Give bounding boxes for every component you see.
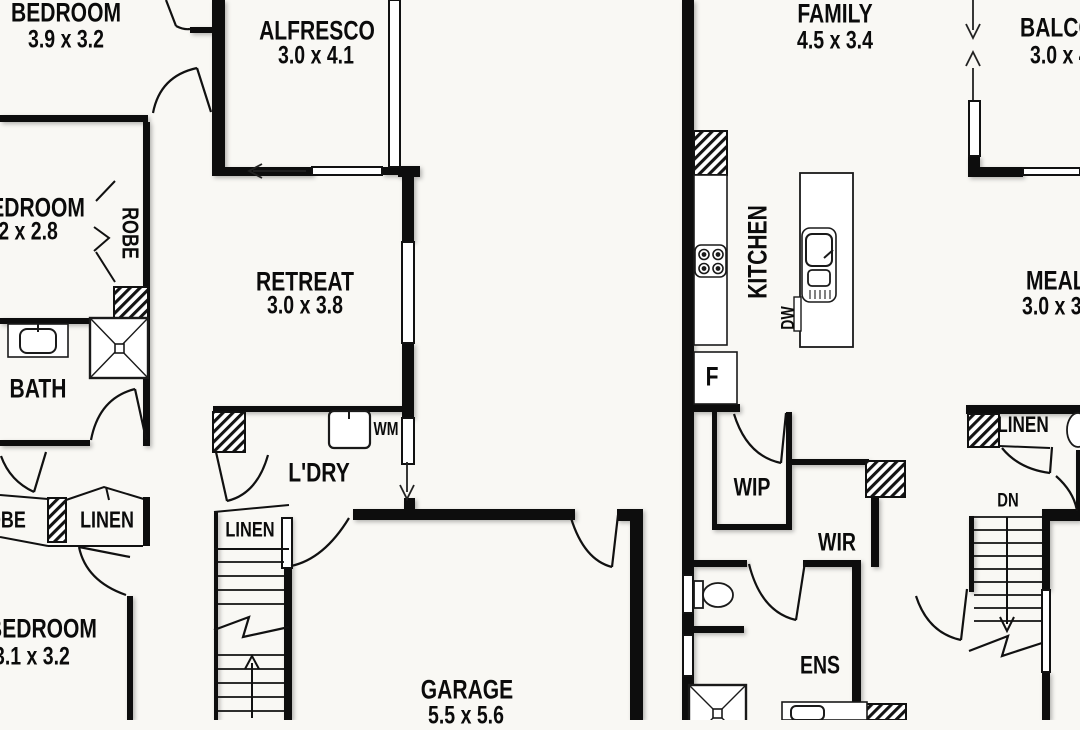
bath-label: BATH [10, 376, 67, 403]
garage-internal-door-arc [291, 518, 349, 566]
kitchen-label: KITCHEN [745, 205, 772, 299]
garage-door-leaf [282, 518, 292, 568]
windows [282, 0, 1080, 676]
fixtures [8, 173, 1080, 720]
alfresco-name: ALFRESCO [259, 18, 375, 45]
entry-arrow [400, 462, 414, 499]
wc-window [683, 575, 693, 613]
laundry-door [216, 452, 268, 501]
garage-rear-door [571, 515, 618, 567]
family-dims: 4.5 x 3.4 [797, 29, 873, 54]
wip-label: WIP [734, 476, 771, 501]
robe-bifold-lines [94, 181, 115, 282]
stair-window [1042, 590, 1050, 672]
dn-label: DN [997, 492, 1018, 511]
bedroom2-dims: 3.2 x 2.8 [0, 220, 58, 245]
wir-label: WIR [818, 531, 856, 556]
wip-door [734, 413, 786, 463]
garage-name: GARAGE [421, 677, 513, 704]
bedroom1-dims: 3.9 x 3.2 [28, 28, 104, 53]
wc-door [749, 562, 805, 620]
laundry-label: L'DRY [288, 460, 350, 487]
ens-window [683, 635, 693, 676]
balcony-side-window [969, 101, 980, 156]
bath-sink [20, 329, 56, 353]
ens-shower [689, 685, 746, 720]
dw-label: DW [779, 306, 797, 329]
robe-label: ROBE [119, 207, 142, 259]
alfresco-screen-window [389, 0, 400, 167]
fridge-label: F [706, 364, 719, 391]
stair-landing-door [916, 589, 967, 640]
floor-plan-canvas: BEDROOM 3.9 x 3.2 ALFRESCO 3.0 x 4.1 BED… [0, 0, 1080, 720]
floorplan-page: { "left": { "bedroom1": {"name": "BEDROO… [0, 0, 1080, 720]
garage-dims: 5.5 x 5.6 [428, 704, 504, 729]
plan-linework-layer [0, 0, 1080, 720]
bedroom1-name: BEDROOM [11, 0, 121, 27]
meals-name: MEALS [1026, 268, 1080, 295]
stairs-down-arrow [1000, 517, 1014, 631]
linen-hall-label: LINEN [80, 509, 134, 532]
robe2-label: ROBE [0, 509, 26, 532]
bath-door [91, 389, 146, 440]
balcony-opening-arrows [966, 0, 980, 100]
alfresco-slider-window [312, 167, 382, 175]
laundry-window [402, 418, 414, 464]
stairs-up [214, 562, 289, 718]
stair-linen-label: LINEN [225, 520, 274, 541]
bedroom3-name: BEDROOM [0, 616, 97, 643]
stairs-up-arrow [245, 656, 259, 718]
balcony-dims: 3.0 x 4.1 [1030, 44, 1080, 69]
wm-label: WM [374, 420, 399, 438]
robe2-door [1, 452, 46, 492]
toilet2-icon [1067, 413, 1080, 447]
walls [0, 0, 1080, 720]
ens-label: ENS [800, 654, 840, 679]
linen-right-label: LINEN [997, 414, 1048, 436]
bedroom3-dims: 3.1 x 3.2 [0, 645, 70, 670]
balcony-front-window [1023, 168, 1080, 175]
family-name: FAMILY [797, 1, 872, 28]
stairs-down [969, 517, 1042, 656]
doors [1, 0, 1077, 640]
alfresco-dims: 3.0 x 4.1 [278, 44, 354, 69]
linen-right-line [999, 446, 1050, 448]
stairs-up-break-line [214, 617, 289, 637]
meals-dims: 3.0 x 3.8 [1022, 295, 1080, 320]
bedroom3-door [79, 547, 130, 595]
bath-shower [90, 318, 148, 378]
retreat-dims: 3.0 x 3.8 [267, 294, 343, 319]
balcony-name: BALCONY [1020, 15, 1080, 42]
bedroom1-door [153, 68, 211, 113]
toilet-icon [694, 581, 733, 608]
ens-sink [791, 706, 824, 720]
retreat-window [402, 242, 414, 343]
entry-door-top [166, 0, 190, 29]
cooktop-icon [695, 245, 726, 277]
island-sink-icon [802, 228, 836, 302]
stairs-down-break-line [969, 636, 1042, 656]
